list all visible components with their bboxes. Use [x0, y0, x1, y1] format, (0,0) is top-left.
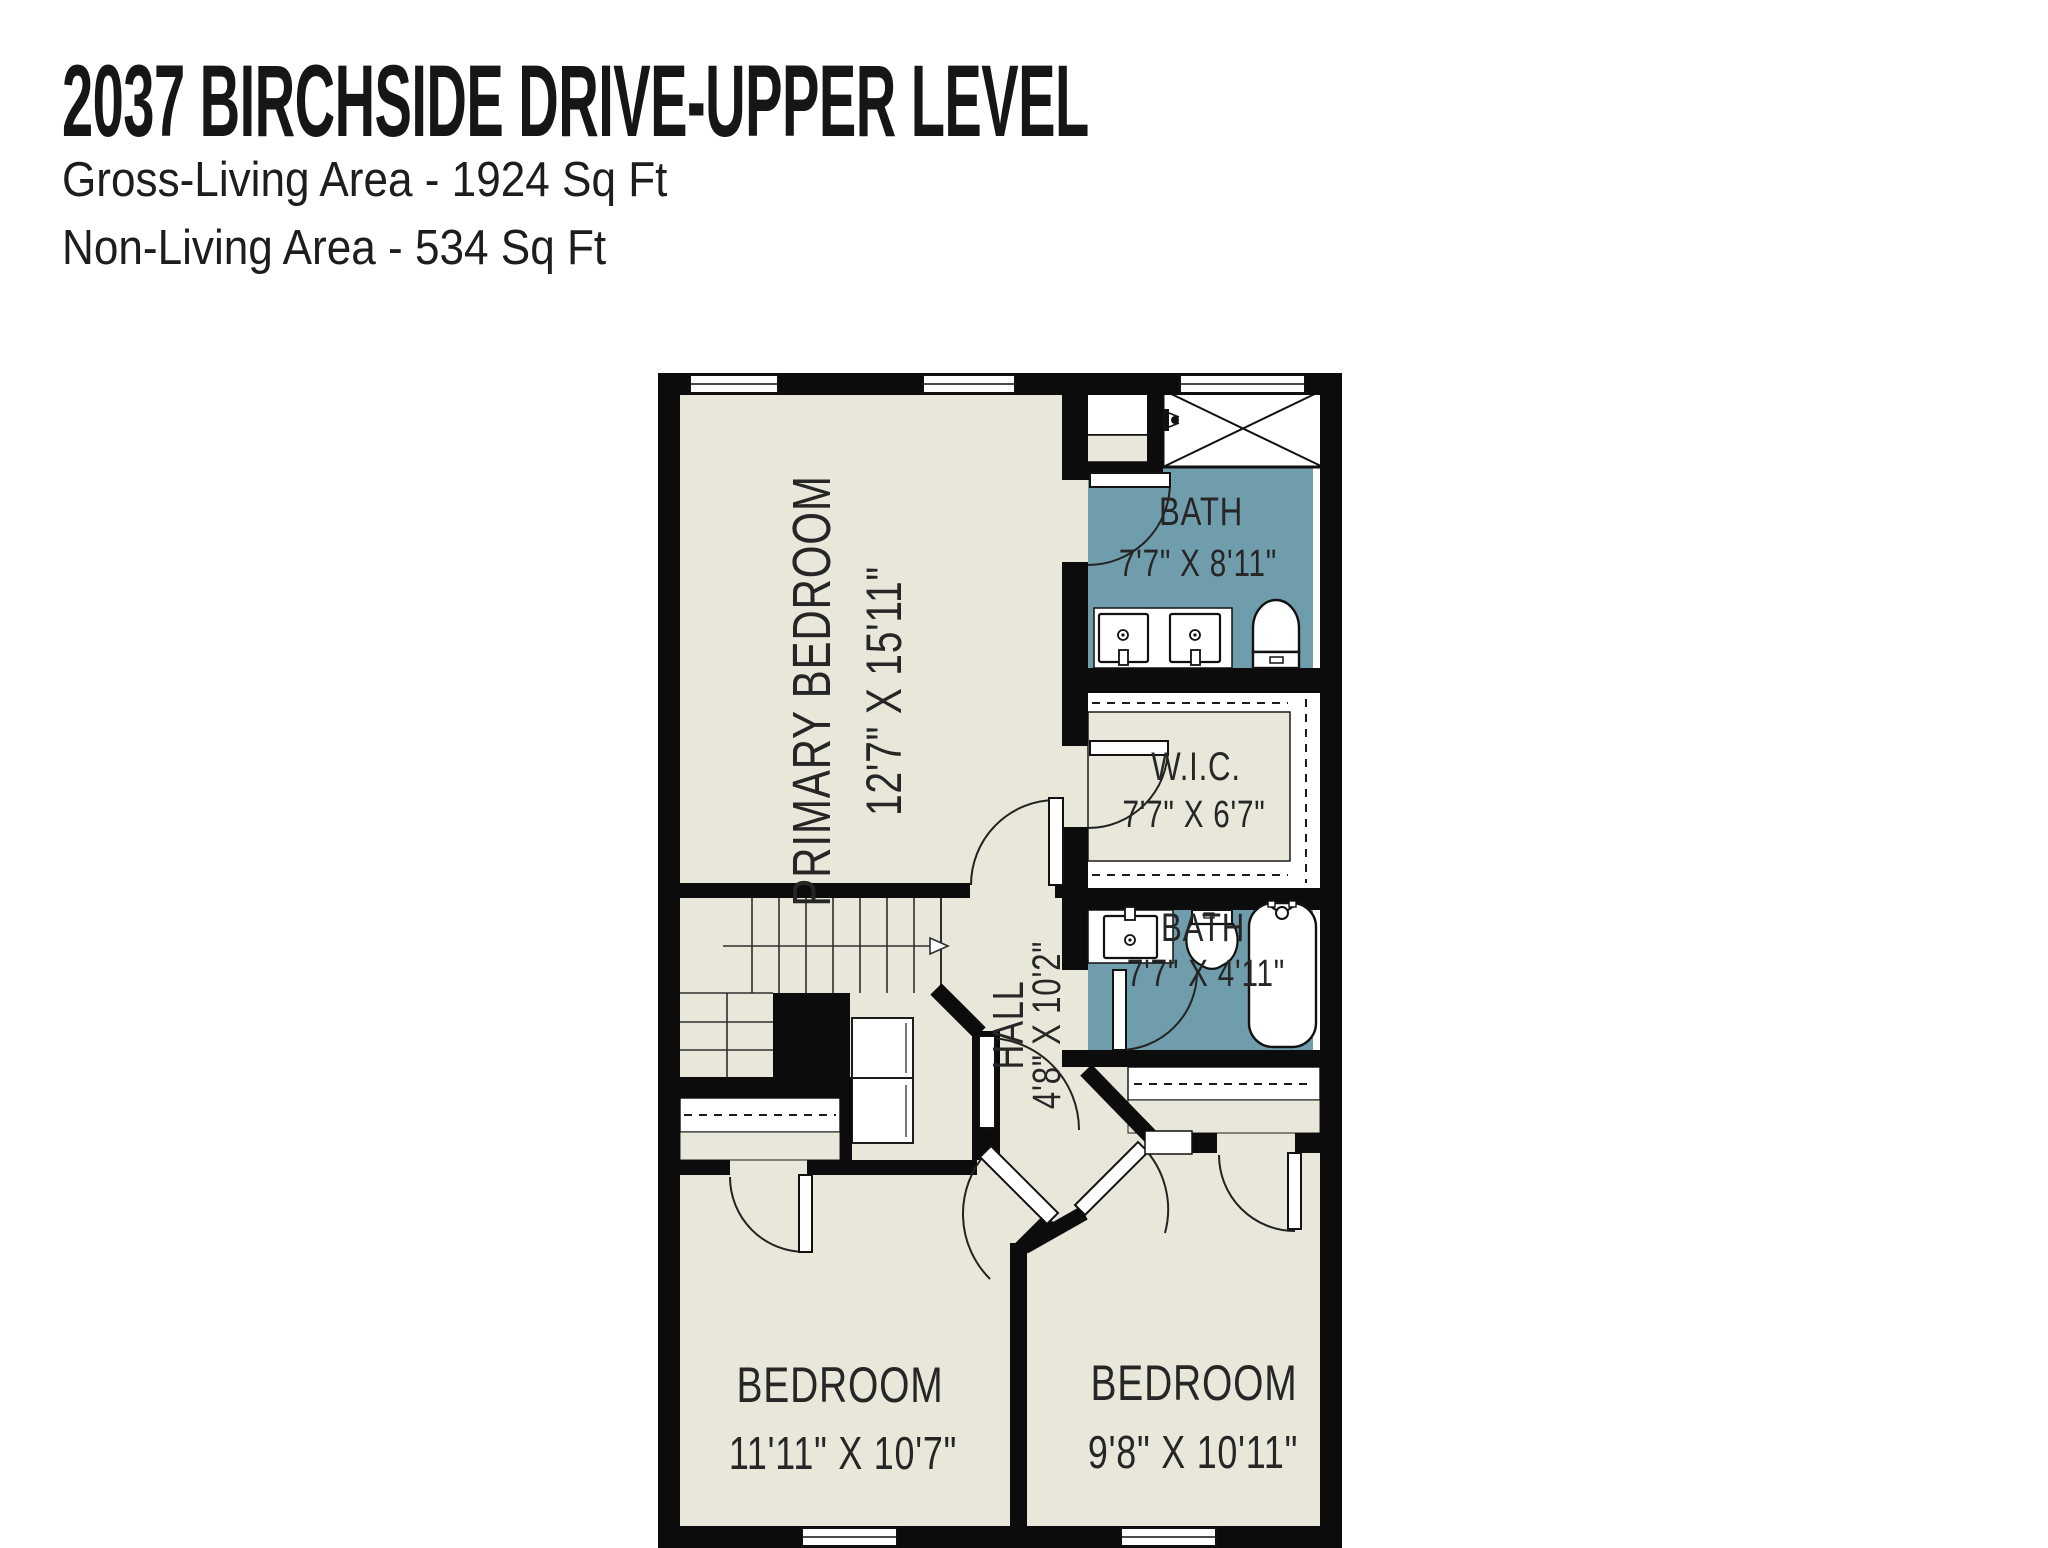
non-living-area: Non-Living Area - 534 Sq Ft — [62, 224, 606, 273]
primary-bedroom-label: PRIMARY BEDROOM — [785, 475, 839, 906]
linen-alcove — [1085, 390, 1151, 462]
double-vanity-icon — [1094, 608, 1232, 668]
wic-dims: 7'7" X 6'7" — [1122, 796, 1265, 834]
bedroom-left-label: BEDROOM — [737, 1360, 944, 1410]
left-bedroom-closet — [680, 1098, 840, 1160]
bath1-dims: 7'7" X 8'11" — [1119, 545, 1277, 583]
bath2-label: BATH — [1161, 908, 1245, 948]
bedroom-left-dims: 11'11" X 10'7" — [729, 1430, 957, 1476]
bedroom-right-label: BEDROOM — [1091, 1358, 1298, 1408]
gross-living-area: Gross-Living Area - 1924 Sq Ft — [62, 156, 667, 205]
right-bedroom-closet — [1128, 1067, 1320, 1133]
page-title: 2037 BIRCHSIDE DRIVE-UPPER LEVEL — [62, 50, 1089, 152]
shower-icon — [1163, 390, 1323, 467]
toilet-icon — [1253, 600, 1299, 668]
floor-plan: PRIMARY BEDROOM 12'7" X 15'11" BATH 7'7"… — [658, 373, 1342, 1548]
bath1-label: BATH — [1159, 492, 1243, 532]
bath2-dims: 7'7" X 4'11" — [1127, 955, 1285, 993]
wic-closet-area — [1088, 693, 1320, 888]
wic-label: W.I.C. — [1151, 747, 1241, 787]
floor-plan-page: { "header": { "title": "2037 BIRCHSIDE D… — [0, 0, 2048, 1536]
hall-dims: 4'8" X 10'2" — [1027, 941, 1067, 1109]
laundry-closet-units — [852, 1018, 913, 1143]
bedroom-right-dims: 9'8" X 10'11" — [1088, 1429, 1298, 1475]
primary-bedroom-dims: 12'7" X 15'11" — [859, 566, 909, 816]
